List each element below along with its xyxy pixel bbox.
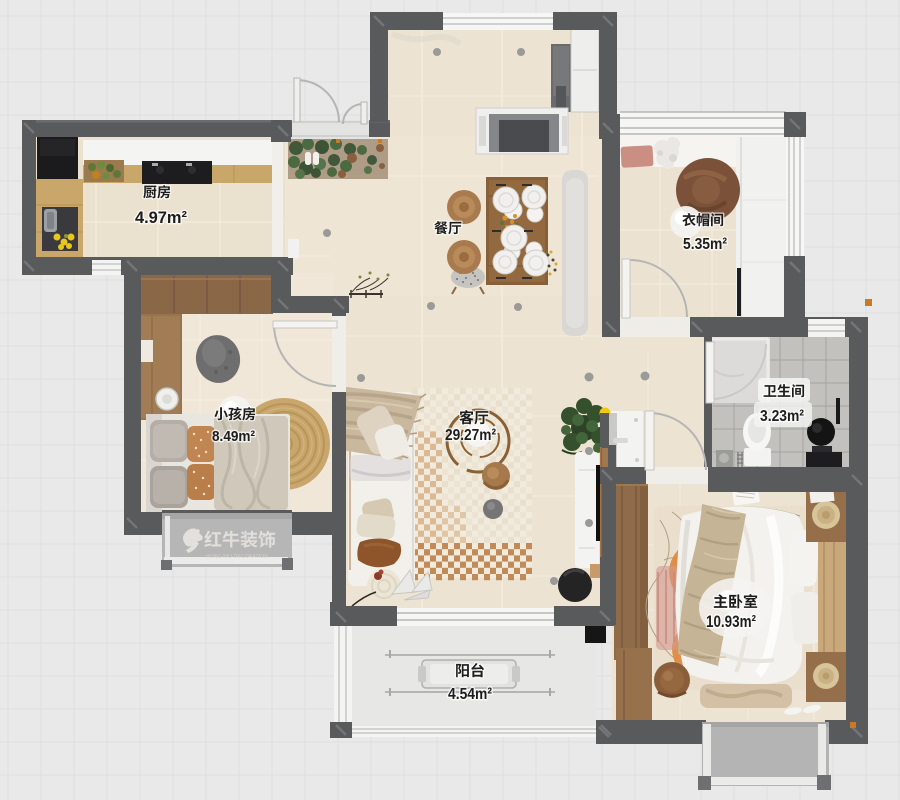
svg-text:HONG NIU DECORATION: HONG NIU DECORATION bbox=[206, 554, 268, 560]
svg-text:3.23m²: 3.23m² bbox=[760, 408, 804, 425]
svg-text:4.97m²: 4.97m² bbox=[135, 208, 187, 227]
svg-text:4.54m²: 4.54m² bbox=[448, 686, 492, 703]
svg-text:29.27m²: 29.27m² bbox=[445, 427, 496, 444]
svg-text:10.93m²: 10.93m² bbox=[706, 612, 756, 631]
svg-text:8.49m²: 8.49m² bbox=[212, 428, 255, 445]
svg-text:5.35m²: 5.35m² bbox=[683, 236, 727, 253]
